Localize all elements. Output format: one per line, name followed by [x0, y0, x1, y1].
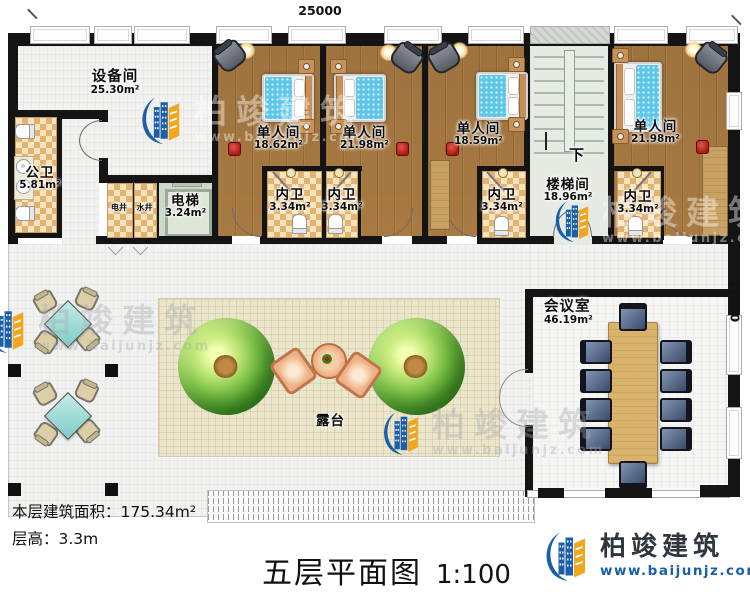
bed-icon [262, 74, 314, 122]
deck-floor-right [530, 244, 728, 290]
room-label-water-shaft: 水井 [132, 204, 157, 212]
room-name: 设备间 [92, 70, 139, 85]
room-label-ensuite2: 内卫 3.34m² [312, 188, 372, 213]
meeting-chair-icon [660, 369, 692, 393]
bed-icon [334, 74, 386, 122]
window [384, 26, 442, 44]
wall-seg [412, 236, 447, 244]
toilet-icon [628, 216, 643, 235]
room-name: 电井 [111, 204, 127, 212]
room-area: 3.34m² [269, 202, 310, 213]
window [726, 407, 742, 459]
toilet-icon [292, 214, 307, 233]
brand-url: www.baijunjz.com [600, 563, 750, 579]
brand-logo: 柏竣建筑 www.baijunjz.com [542, 527, 750, 585]
room-area: 5.81m² [19, 180, 60, 191]
brand-text: 柏竣建筑 www.baijunjz.com [600, 534, 750, 579]
room-area: 21.98m² [631, 134, 680, 145]
room-name: 水井 [137, 204, 153, 212]
pillows [343, 76, 355, 120]
nightstand-icon [612, 48, 629, 63]
meeting-table-icon [608, 322, 658, 464]
nightstand-icon [298, 59, 315, 74]
room-area: 18.59m² [454, 136, 503, 147]
room-name: 露台 [316, 414, 345, 428]
floor-area-note: 本层建筑面积：175.34m² [12, 500, 196, 522]
wall-seg [692, 236, 740, 244]
floor-area-label: 本层建筑面积： [12, 503, 121, 521]
stair-direction: 下 [569, 148, 585, 164]
toilet-icon [15, 206, 34, 221]
stairwell-top-hatch [530, 26, 610, 44]
column-icon [8, 364, 21, 377]
window [288, 26, 346, 44]
drawing-scale: 1:100 [436, 560, 511, 590]
room-area: 18.62m² [254, 140, 303, 151]
dimension-tick [731, 15, 741, 25]
stair-direction-label: 下 [562, 148, 592, 164]
wall-meeting-corner [700, 485, 740, 497]
brand-glyph-icon [542, 527, 592, 585]
meeting-chair-icon [660, 340, 692, 364]
brand-name: 柏竣建筑 [600, 534, 750, 560]
meeting-chair-icon [660, 398, 692, 422]
floor-height-value: 3.3m [59, 530, 99, 548]
window [614, 26, 668, 44]
tree-icon [368, 318, 465, 415]
room-label-equipment: 设备间 25.30m² [70, 70, 160, 96]
toilet-icon [328, 214, 343, 233]
nightstand-icon [330, 59, 347, 74]
wall-meeting-bottom [538, 488, 564, 498]
room-area: 46.19m² [544, 315, 593, 326]
room-label-elevator: 电梯 3.24m² [158, 194, 213, 219]
column-icon [8, 483, 21, 496]
dimension-right: 17500 [728, 276, 743, 326]
stair-rail [564, 50, 575, 152]
meeting-chair-icon [619, 461, 647, 489]
faucet-icon [286, 168, 296, 178]
room-label-stairwell: 楼梯间 18.96m² [528, 178, 608, 203]
window [468, 26, 524, 44]
room-area: 3.34m² [481, 202, 522, 213]
headboard [305, 76, 312, 120]
floor-height-note: 层高：3.3m [12, 527, 98, 549]
window [94, 26, 132, 44]
wall-meeting-top [525, 289, 740, 297]
meeting-chair-icon [580, 340, 612, 364]
room-area: 3.34m² [321, 202, 362, 213]
room-label-terrace: 露台 [303, 414, 358, 428]
wall-bedroom2-3 [422, 33, 428, 236]
wall-meeting-bottom [605, 488, 652, 498]
column-icon [105, 483, 118, 496]
wall-meeting-left-lower [525, 425, 533, 497]
window [726, 92, 742, 130]
room-area: 3.24m² [165, 208, 206, 219]
wall-right-mid [728, 373, 740, 407]
room-label-single2: 单人间 21.98m² [322, 126, 407, 151]
floor-plan-page: 设备间 25.30m² 公卫 5.81m² 电井 水井 电梯 3.24m² 单人… [0, 0, 750, 595]
stair-arrow [545, 132, 547, 150]
tree-icon [178, 318, 275, 415]
wall-meeting-left-upper [525, 289, 533, 373]
meeting-chair-icon [580, 398, 612, 422]
room-label-single4: 单人间 21.98m² [613, 120, 698, 145]
meeting-chair-icon [660, 427, 692, 451]
meeting-chair-icon [580, 369, 612, 393]
room-label-ensuite4: 内卫 3.34m² [608, 190, 668, 215]
desk-icon [702, 146, 728, 236]
floor-height-label: 层高： [12, 530, 59, 548]
floor-area-value: 175.34m² [121, 503, 197, 521]
window [30, 26, 90, 44]
window [134, 26, 190, 44]
mattress [479, 75, 506, 117]
toilet-icon [494, 216, 509, 235]
toilet-icon [15, 124, 34, 139]
room-label-single1: 单人间 18.62m² [236, 126, 321, 151]
headboard [336, 76, 343, 120]
headboard [519, 74, 526, 118]
room-name: 会议室 [544, 300, 591, 315]
room-label-meeting: 会议室 46.19m² [544, 300, 634, 326]
room-area: 18.96m² [544, 192, 593, 203]
pillows [507, 74, 519, 118]
dimension-top: 25000 [288, 3, 352, 18]
room-label-public-wc: 公卫 5.81m² [9, 166, 71, 191]
faucet-icon [498, 168, 508, 178]
dimension-tick [27, 9, 37, 19]
room-label-ensuite1: 内卫 3.34m² [260, 188, 320, 213]
room-area: 21.98m² [340, 140, 389, 151]
room-label-ensuite3: 内卫 3.34m² [472, 188, 532, 213]
bed-icon [476, 72, 528, 120]
faucet-icon [632, 168, 642, 178]
nightstand-icon [508, 57, 525, 72]
pillows [293, 76, 305, 120]
mattress [356, 77, 383, 119]
drawing-title-text: 五层平面图 [262, 548, 422, 592]
wall-right-upper [728, 33, 740, 315]
faucet-icon [334, 168, 344, 178]
desk-icon [430, 160, 450, 230]
room-area: 3.34m² [617, 204, 658, 215]
room-area: 25.30m² [91, 85, 140, 96]
room-label-single3: 单人间 18.59m² [436, 122, 521, 147]
drawing-title: 五层平面图 1:100 [258, 548, 519, 595]
wall-seg [530, 236, 554, 244]
room-label-electric-shaft: 电井 [105, 204, 133, 212]
mattress [265, 77, 292, 119]
column-icon [105, 364, 118, 377]
meeting-chair-icon [580, 427, 612, 451]
walkway-hatch [207, 490, 535, 523]
